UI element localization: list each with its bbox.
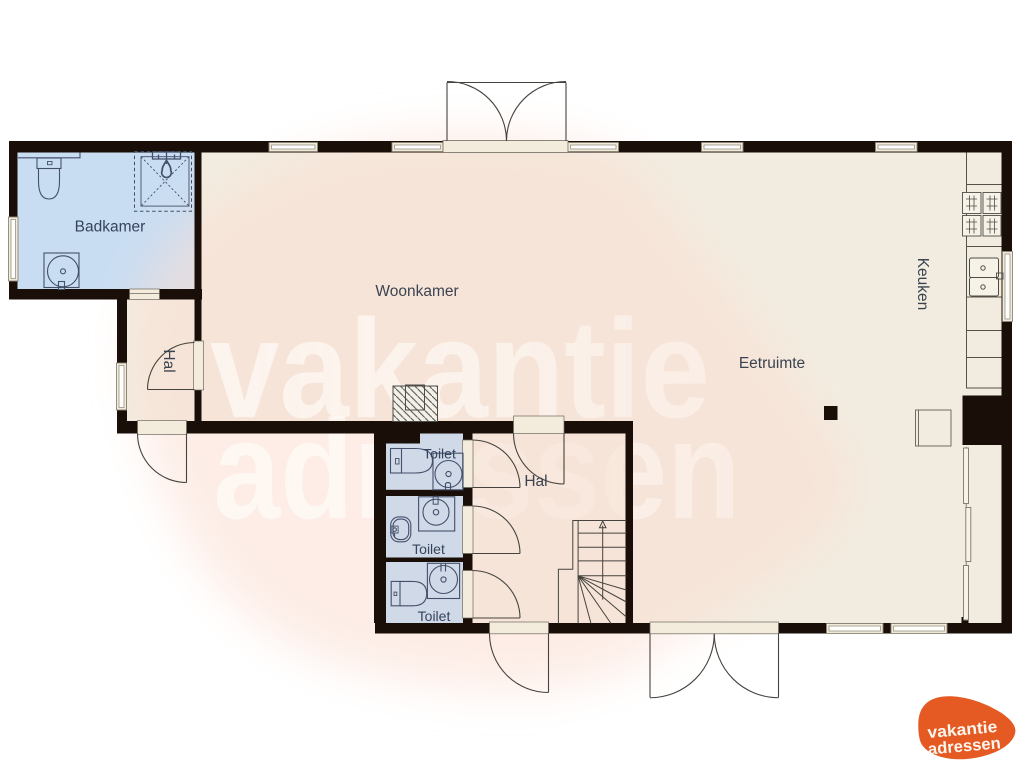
svg-text:adressen: adressen [214,391,741,548]
svg-text:Keuken: Keuken [914,258,931,311]
svg-text:Hal: Hal [160,349,177,372]
svg-text:Toilet: Toilet [418,608,451,624]
svg-text:Hal: Hal [524,473,547,490]
svg-text:Toilet: Toilet [423,446,456,462]
svg-text:Eetruimte: Eetruimte [739,355,805,372]
svg-text:Toilet: Toilet [412,541,445,557]
svg-text:Badkamer: Badkamer [75,219,146,236]
svg-text:Woonkamer: Woonkamer [375,283,458,300]
